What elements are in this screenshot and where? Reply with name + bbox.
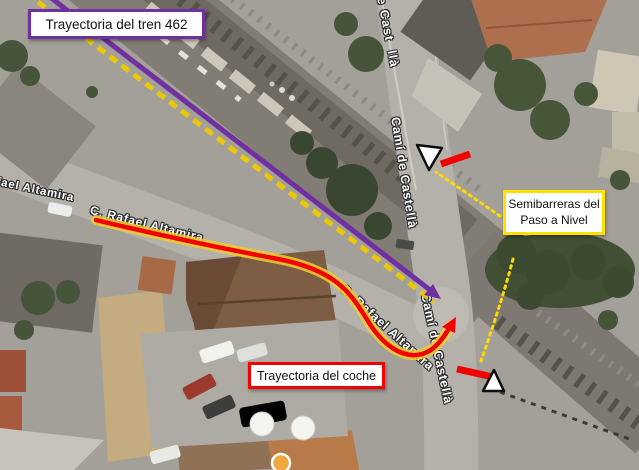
barrier-bar-south (457, 369, 493, 377)
car-callout-label: Trayectoria del coche (257, 369, 376, 383)
train-callout-label: Trayectoria del tren 462 (45, 17, 187, 32)
car-trajectory-glow (96, 220, 451, 355)
barrier-triangle-north-icon (417, 145, 442, 170)
car-trajectory-callout: Trayectoria del coche (248, 362, 385, 389)
car-trajectory-line (96, 220, 451, 355)
connector-dotted-north (436, 172, 500, 216)
semibarriers-callout-line1: Semibarreras del (506, 197, 602, 213)
semibarriers-callout-line2: Paso a Nivel (506, 213, 602, 229)
train-trajectory-callout: Trayectoria del tren 462 (28, 9, 205, 39)
railway-dashed-line (38, 2, 434, 302)
connector-dotted-south (481, 259, 513, 361)
annotated-satellite-map: fael Altamira C. Rafael Altamira C. Rafa… (0, 0, 639, 470)
semibarriers-callout: Semibarreras del Paso a Nivel (503, 190, 605, 235)
barrier-bar-north (441, 154, 470, 164)
